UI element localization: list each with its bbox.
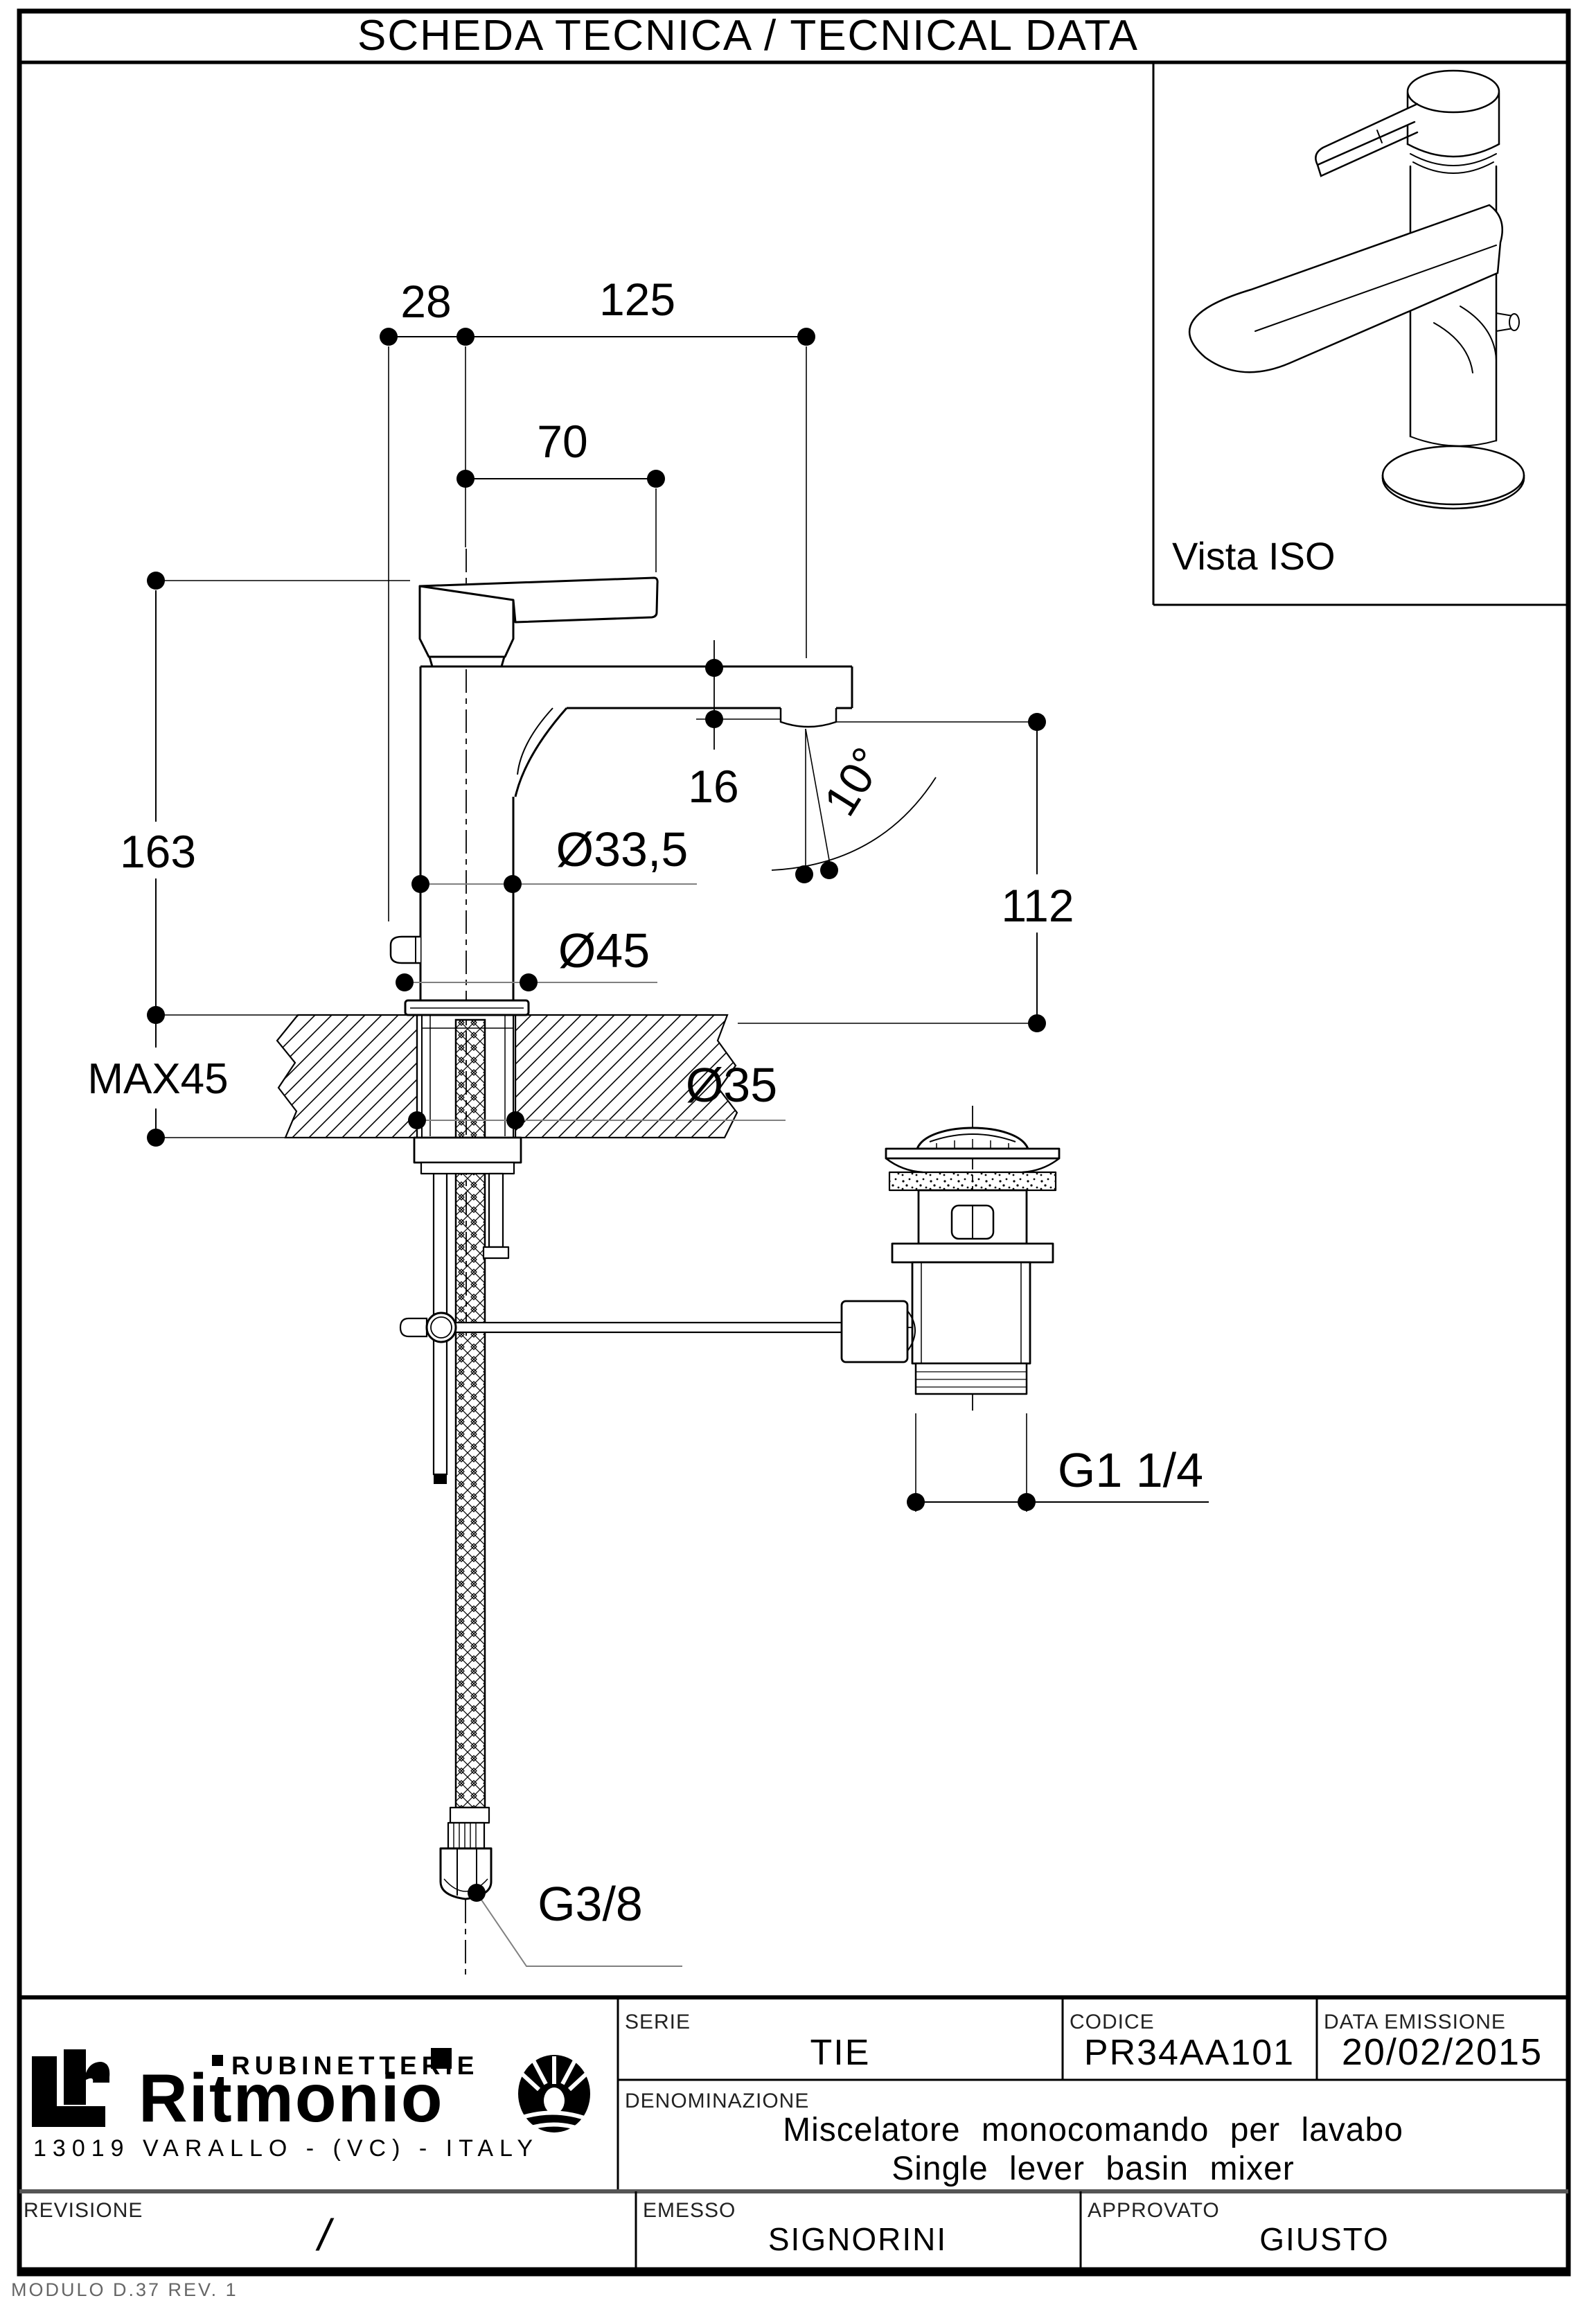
modulo-footer: MODULO D.37 REV. 1 — [11, 2279, 238, 2300]
iso-spout — [1189, 205, 1502, 372]
hose-stub — [484, 1174, 508, 1258]
revisione-value: / — [315, 2210, 335, 2260]
drain-assembly — [842, 1128, 1059, 1394]
dim-diameter-35: Ø35 — [686, 1058, 777, 1112]
logo-brand-name: Ritmonio — [139, 2060, 444, 2136]
horizontal-rod — [454, 1323, 844, 1332]
dim-diameter-33-5: Ø33,5 — [556, 822, 689, 876]
backnut — [414, 1138, 521, 1163]
logo-mark-r — [64, 2049, 109, 2105]
cartridge-collar — [429, 657, 504, 666]
iso-handle-lever — [1315, 104, 1417, 176]
company-logo: RUBINETTERIE Ritmonio 13019 VARALLO - (V… — [32, 2048, 590, 2162]
datasheet-canvas: SCHEDA TECNICA / TECNICAL DATA — [0, 0, 1596, 2305]
drain-gasket — [889, 1172, 1056, 1190]
iso-view-drawing — [1189, 71, 1524, 509]
aerator — [781, 708, 836, 727]
iso-popup-knob — [1496, 313, 1519, 331]
approvato-value: GIUSTO — [1259, 2221, 1390, 2257]
dim-125: 125 — [599, 274, 675, 325]
drain-top-flange — [886, 1149, 1059, 1158]
dim-g3-8: G3/8 — [538, 1877, 643, 1931]
emesso-label: EMESSO — [643, 2199, 736, 2222]
data-emissione-label: DATA EMISSIONE — [1324, 2011, 1506, 2033]
hose-fitting — [441, 1808, 491, 1899]
dim-diameter-45: Ø45 — [558, 924, 650, 978]
spout — [420, 666, 852, 797]
data-emissione-value: 20/02/2015 — [1342, 2031, 1543, 2073]
faucet-front-view — [391, 578, 852, 1258]
serie-label: SERIE — [625, 2011, 691, 2033]
approvato-label: APPROVATO — [1088, 2199, 1220, 2222]
dim-28: 28 — [400, 276, 451, 327]
page-border — [19, 11, 1568, 2274]
serie-value: TIE — [810, 2033, 871, 2073]
drain-thread — [916, 1363, 1027, 1394]
denominazione-label: DENOMINAZIONE — [625, 2090, 809, 2112]
dim-max45: MAX45 — [87, 1055, 228, 1103]
dim-112: 112 — [1001, 880, 1074, 931]
codice-value: PR34AA101 — [1084, 2033, 1295, 2073]
page-title: SCHEDA TECNICA / TECNICAL DATA — [357, 12, 1139, 60]
logo-address: 13019 VARALLO - (VC) - ITALY — [33, 2135, 539, 2162]
denominazione-line2: Single lever basin mixer — [892, 2151, 1295, 2187]
revisione-label: REVISIONE — [24, 2199, 143, 2222]
emesso-value: SIGNORINI — [768, 2221, 947, 2257]
rod-end-stub — [400, 1318, 427, 1336]
technical-datasheet-page: SCHEDA TECNICA / TECNICAL DATA — [0, 0, 1596, 2305]
dim-163: 163 — [120, 826, 196, 877]
logo-emblem — [518, 2055, 590, 2132]
dim-16: 16 — [688, 761, 738, 812]
drain-tailpiece — [912, 1262, 1030, 1363]
codice-label: CODICE — [1070, 2011, 1155, 2033]
drain-mid-flange — [892, 1244, 1053, 1262]
iso-view-label: Vista ISO — [1172, 534, 1336, 578]
dim-70: 70 — [537, 416, 587, 467]
dim-10-degrees: 10° — [814, 739, 894, 824]
lever-housing — [842, 1301, 907, 1362]
denominazione-line1: Miscelatore monocomando per lavabo — [783, 2112, 1403, 2148]
dim-g1-1-4: G1 1/4 — [1058, 1443, 1203, 1497]
